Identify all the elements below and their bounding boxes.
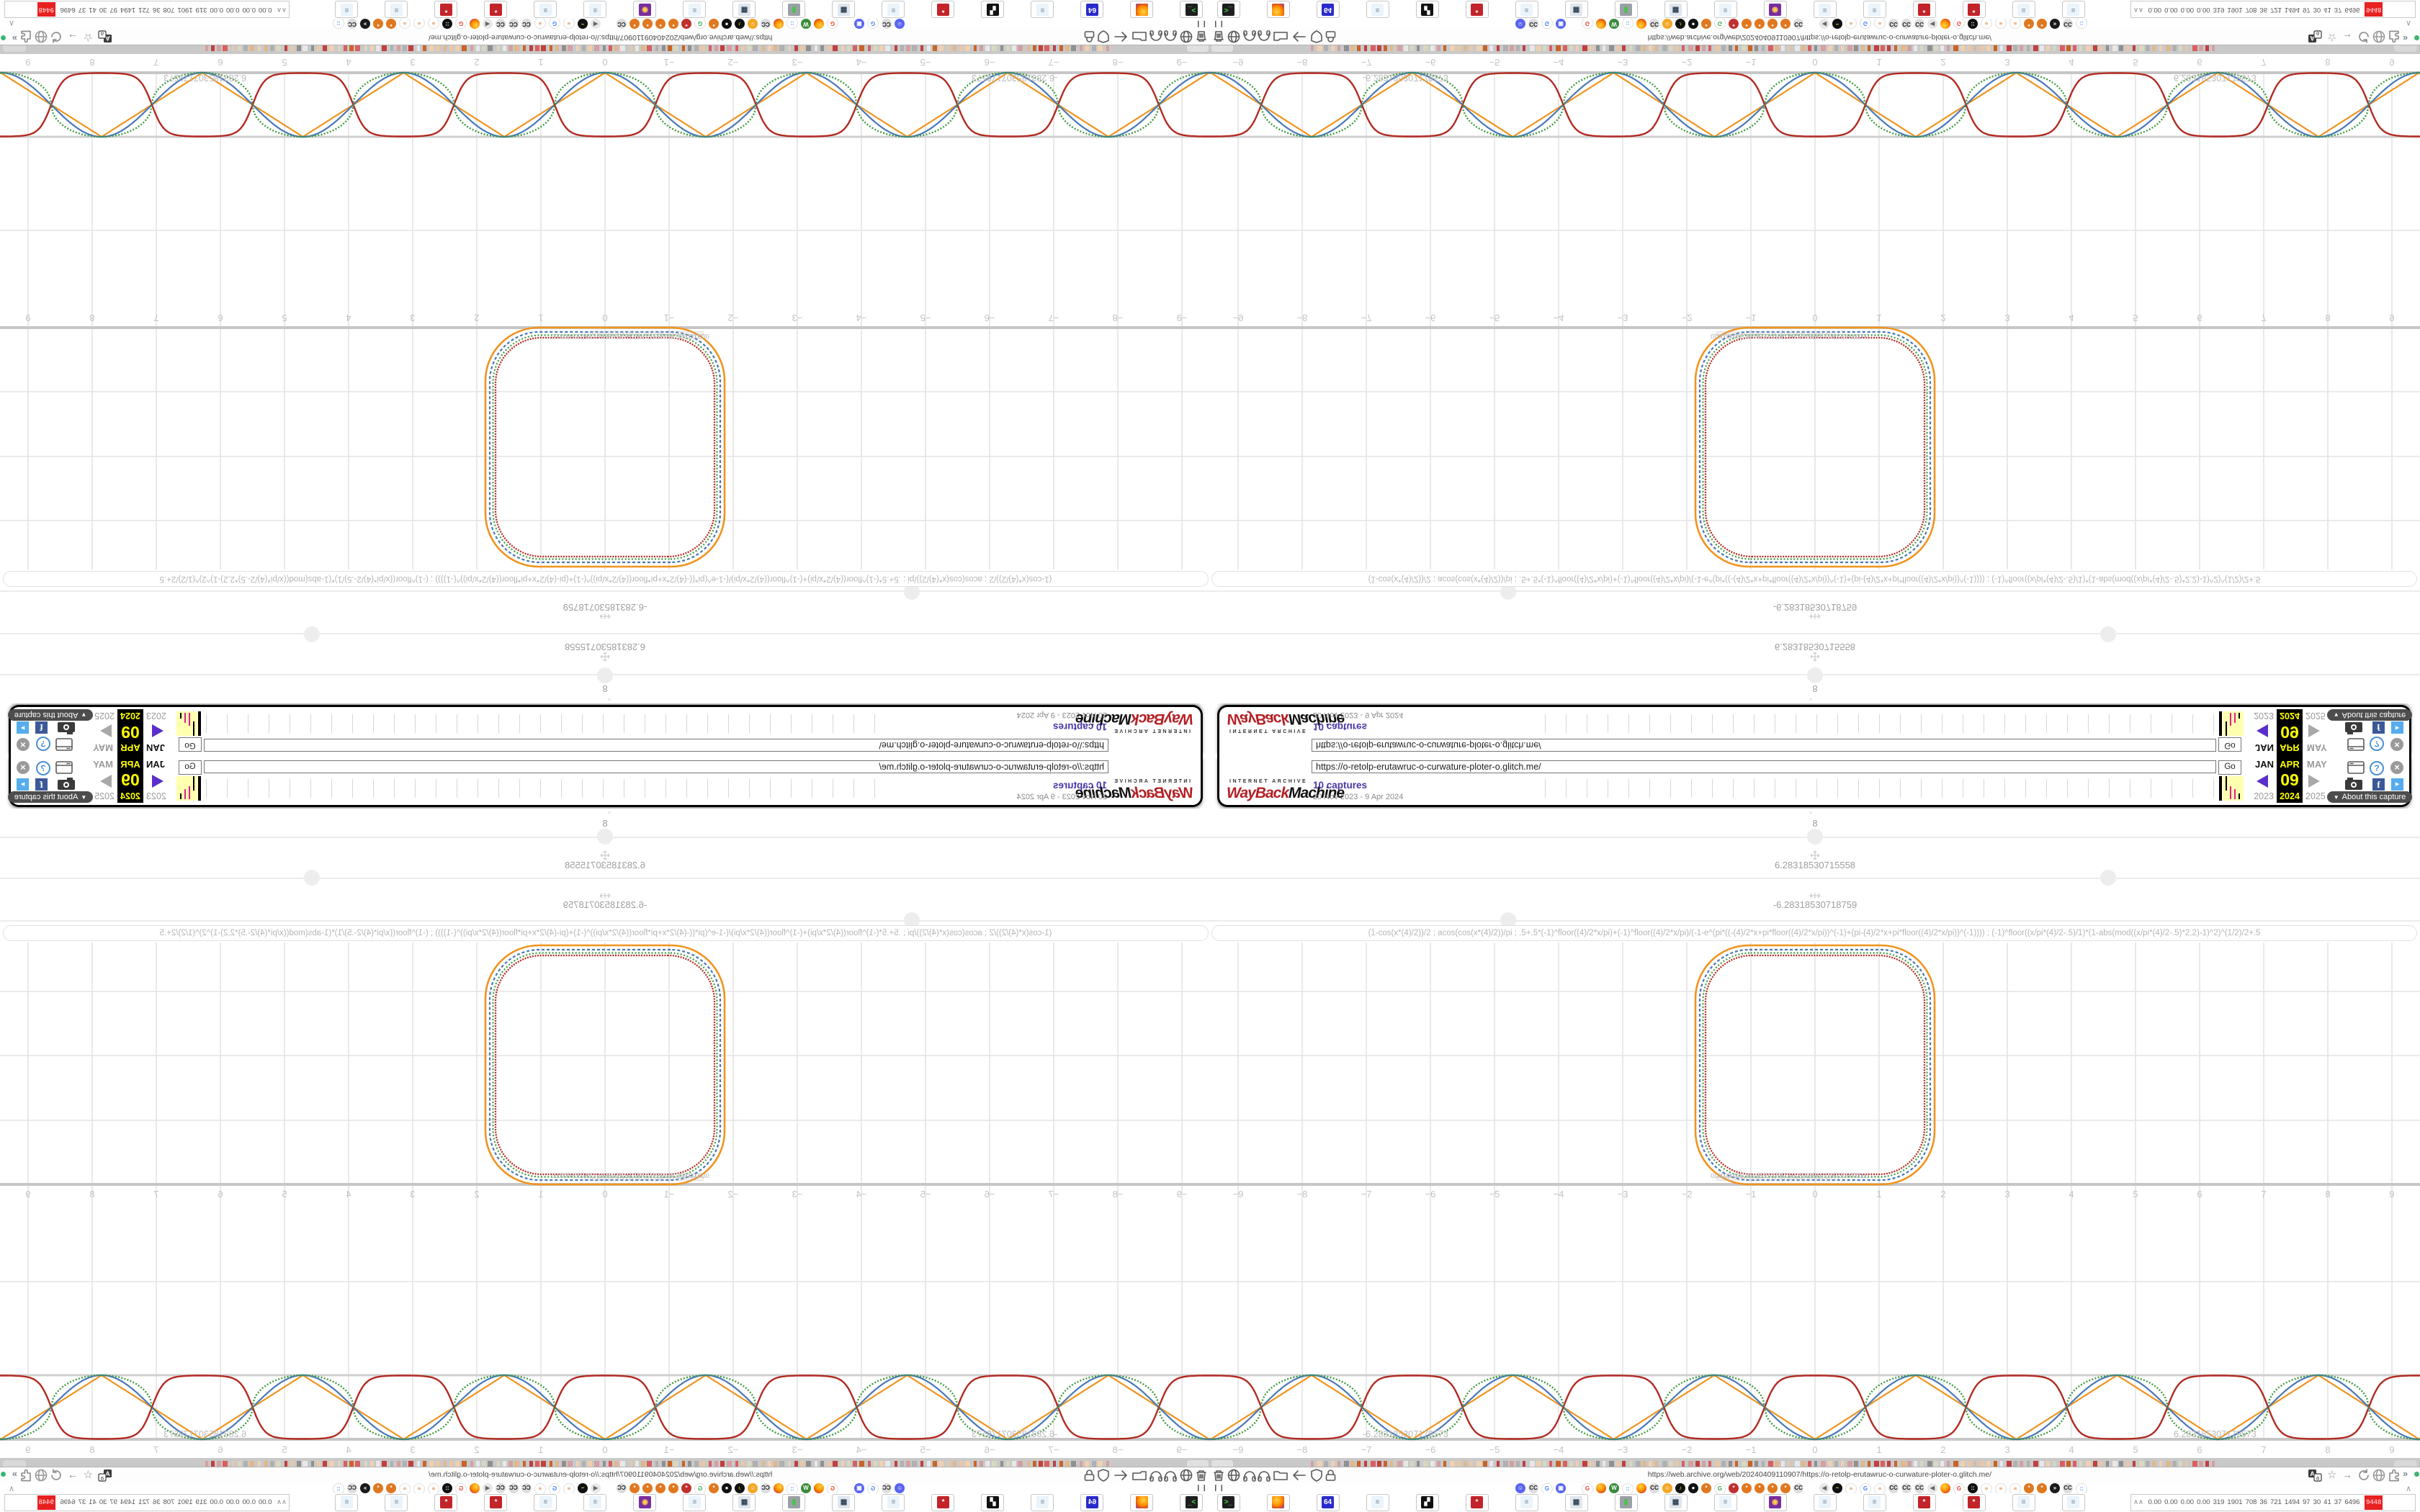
bookmark-favicon-9[interactable]: CC bbox=[761, 1483, 771, 1493]
extension-puzzle-icon[interactable] bbox=[2388, 1469, 2401, 1482]
about-this-capture-button[interactable]: ▼About this capture bbox=[2327, 709, 2412, 721]
tiny-tab-sliver[interactable] bbox=[514, 1461, 519, 1467]
tiny-tab-sliver[interactable] bbox=[1721, 1461, 1726, 1467]
tiny-tab-sliver[interactable] bbox=[655, 45, 658, 51]
tab-thumbnail-4[interactable]: ▞ bbox=[981, 1, 1004, 18]
tiny-tab-sliver[interactable] bbox=[1629, 45, 1632, 51]
tiny-tab-sliver[interactable] bbox=[933, 45, 937, 51]
tiny-tab-sliver[interactable] bbox=[1450, 45, 1455, 51]
tiny-tab-sliver[interactable] bbox=[668, 45, 672, 51]
tiny-tab-sliver[interactable] bbox=[912, 1461, 917, 1467]
tab-thumbnail-15[interactable]: * bbox=[434, 1494, 457, 1511]
tiny-tab-sliver[interactable] bbox=[985, 45, 990, 51]
collapse-chevron-icon[interactable]: ∧ bbox=[9, 19, 14, 28]
tab-thumbnail-16[interactable]: ≡ bbox=[385, 1, 408, 18]
tiny-tab-sliver[interactable] bbox=[1483, 45, 1487, 51]
month-prev[interactable]: JAN bbox=[146, 759, 175, 770]
tiny-tab-sliver[interactable] bbox=[1675, 1461, 1679, 1467]
tab-thumbnail-10[interactable]: ≡ bbox=[1714, 1494, 1737, 1511]
tab-thumbnail-12[interactable]: ≡ bbox=[1814, 1, 1837, 18]
headphones-icon-2[interactable] bbox=[1258, 30, 1270, 43]
bookmark-favicon-21[interactable]: ◀ bbox=[591, 19, 601, 29]
tab-thumbnail-11[interactable]: ◉ bbox=[633, 1, 656, 18]
tiny-tab-sliver[interactable] bbox=[1006, 45, 1010, 51]
bookmark-favicon-0[interactable]: ☺ bbox=[895, 1483, 905, 1493]
tiny-tab-sliver[interactable] bbox=[297, 1461, 301, 1467]
bookmark-favicon-14[interactable]: G bbox=[1714, 17, 1726, 29]
tiny-tab-sliver[interactable] bbox=[1768, 45, 1773, 51]
bookmark-favicon-11[interactable]: ♪ bbox=[1675, 19, 1685, 29]
bookmark-favicon-21[interactable]: ◀ bbox=[1819, 19, 1829, 29]
tiny-tab-sliver[interactable] bbox=[1569, 1461, 1573, 1467]
bookmark-favicon-26[interactable]: CC bbox=[1888, 1483, 1899, 1493]
tiny-tab-sliver[interactable] bbox=[1530, 1461, 1535, 1467]
bookmark-favicon-29[interactable]: ◀ bbox=[483, 1483, 493, 1493]
twitter-share-icon[interactable]: ▸ bbox=[17, 721, 29, 734]
bookmark-favicon-5[interactable] bbox=[1596, 1483, 1606, 1493]
tiny-tab-sliver[interactable] bbox=[694, 45, 699, 51]
tiny-tab-sliver[interactable] bbox=[879, 1461, 884, 1467]
bookmark-favicon-38[interactable]: » bbox=[2050, 19, 2060, 29]
tiny-tab-sliver[interactable] bbox=[662, 1461, 665, 1467]
bookmark-favicon-10[interactable]: ☺ bbox=[1662, 1483, 1672, 1493]
browser-window-icon[interactable] bbox=[55, 761, 73, 774]
year-prev[interactable]: 2023 bbox=[146, 711, 178, 721]
globe-icon[interactable] bbox=[1180, 30, 1193, 43]
tiny-tab-sliver[interactable] bbox=[594, 1461, 599, 1467]
bookmark-favicon-40[interactable]: :: bbox=[2076, 17, 2087, 29]
tiny-tab-sliver[interactable] bbox=[920, 1461, 923, 1467]
tiny-tab-sliver[interactable] bbox=[1960, 45, 1965, 51]
tiny-tab-sliver[interactable] bbox=[417, 45, 420, 51]
slider3-track[interactable] bbox=[0, 590, 1210, 592]
tiny-tab-sliver[interactable] bbox=[1456, 1461, 1461, 1467]
bookmark-favicon-39[interactable]: CC bbox=[347, 1483, 357, 1493]
tiny-tab-sliver[interactable] bbox=[349, 45, 354, 51]
bookmark-favicon-22[interactable]: ~ bbox=[578, 1483, 588, 1493]
capture-timeline[interactable] bbox=[172, 776, 875, 801]
collapse-chevron-icon[interactable]: ∧ bbox=[9, 1484, 14, 1493]
tab-thumbnail-17[interactable]: ≡ bbox=[2062, 1494, 2085, 1511]
tiny-tab-sliver[interactable] bbox=[933, 1461, 937, 1467]
tiny-tab-sliver[interactable] bbox=[1754, 1461, 1758, 1467]
tiny-tab-sliver[interactable] bbox=[1994, 45, 1997, 51]
tiny-tab-sliver[interactable] bbox=[700, 1461, 705, 1467]
slider1-handle[interactable] bbox=[1807, 829, 1823, 845]
tiny-tab-sliver[interactable] bbox=[974, 1461, 977, 1467]
slider3-track[interactable] bbox=[1210, 920, 2420, 922]
tiny-tab-sliver[interactable] bbox=[874, 45, 877, 51]
tiny-tab-sliver[interactable] bbox=[2046, 45, 2050, 51]
tiny-tab-sliver[interactable] bbox=[1443, 1461, 1446, 1467]
tab-thumbnail-12[interactable]: ≡ bbox=[583, 1, 606, 18]
tiny-tab-sliver[interactable] bbox=[1523, 45, 1525, 51]
tiny-tab-sliver[interactable] bbox=[329, 1461, 334, 1467]
tiny-tab-sliver[interactable] bbox=[1423, 1461, 1428, 1467]
tiny-tab-sliver[interactable] bbox=[317, 1461, 321, 1467]
tiny-tab-sliver[interactable] bbox=[2020, 1461, 2023, 1467]
tiny-tab-sliver[interactable] bbox=[2086, 45, 2091, 51]
tiny-tab-sliver[interactable] bbox=[774, 45, 778, 51]
tiny-tab-sliver[interactable] bbox=[1695, 45, 1700, 51]
folder-icon[interactable] bbox=[1132, 1470, 1147, 1481]
headphones-icon-2[interactable] bbox=[1149, 30, 1162, 43]
tiny-tab-sliver[interactable] bbox=[1344, 45, 1349, 51]
bookmark-favicon-20[interactable]: CC bbox=[617, 19, 627, 29]
tiny-tab-sliver[interactable] bbox=[833, 1461, 838, 1467]
tiny-tab-sliver[interactable] bbox=[853, 45, 857, 51]
tiny-tab-sliver[interactable] bbox=[1735, 45, 1738, 51]
tiny-tab-sliver[interactable] bbox=[938, 45, 944, 51]
tab-thumbnail-7[interactable]: ▦ bbox=[1565, 1, 1588, 18]
tab-thumbnail-7[interactable]: ▦ bbox=[832, 1, 855, 18]
tab-thumbnail-14[interactable]: * bbox=[484, 1494, 507, 1511]
bookmark-favicon-12[interactable]: ● bbox=[722, 1483, 732, 1493]
tiny-tab-sliver[interactable] bbox=[2027, 1461, 2030, 1467]
tiny-tab-sliver[interactable] bbox=[1364, 45, 1367, 51]
tiny-tab-sliver[interactable] bbox=[2106, 45, 2109, 51]
tiny-tab-sliver[interactable] bbox=[1934, 45, 1938, 51]
shield-icon[interactable] bbox=[1098, 30, 1109, 43]
tiny-tab-sliver[interactable] bbox=[1357, 1461, 1361, 1467]
tiny-tab-sliver[interactable] bbox=[284, 1461, 287, 1467]
tiny-tab-sliver[interactable] bbox=[1953, 45, 1958, 51]
tiny-tab-sliver[interactable] bbox=[747, 1461, 751, 1467]
tab-thumbnail-3[interactable]: ≡ bbox=[1031, 1, 1054, 18]
tiny-tab-sliver[interactable] bbox=[1331, 45, 1335, 51]
tiny-tab-sliver[interactable] bbox=[2119, 45, 2123, 51]
tiny-tab-sliver[interactable] bbox=[603, 1461, 606, 1467]
bookmark-favicon-6[interactable]: W bbox=[1609, 1483, 1619, 1493]
tiny-tab-sliver[interactable] bbox=[270, 45, 274, 51]
bookmark-favicon-20[interactable]: CC bbox=[617, 1483, 627, 1493]
tiny-tab-sliver[interactable] bbox=[2152, 1461, 2156, 1467]
tiny-tab-sliver[interactable] bbox=[317, 45, 321, 51]
tiny-tab-sliver[interactable] bbox=[1636, 1461, 1641, 1467]
tiny-tab-sliver[interactable] bbox=[2166, 1461, 2171, 1467]
tiny-tab-sliver[interactable] bbox=[1609, 1461, 1614, 1467]
tiny-tab-sliver[interactable] bbox=[1914, 1461, 1917, 1467]
tiny-tab-sliver[interactable] bbox=[323, 45, 327, 51]
month-next[interactable]: MAY bbox=[2307, 742, 2339, 753]
folder-icon[interactable] bbox=[1273, 31, 1288, 42]
slider1-handle[interactable] bbox=[597, 829, 613, 845]
tiny-tab-sliver[interactable] bbox=[1053, 1461, 1056, 1467]
go-button[interactable]: Go bbox=[179, 760, 202, 775]
close-toolbar-icon[interactable]: × bbox=[2390, 738, 2403, 751]
tiny-tab-sliver[interactable] bbox=[2020, 45, 2023, 51]
capture-burst-bar[interactable] bbox=[198, 711, 201, 736]
tiny-tab-sliver[interactable] bbox=[276, 1461, 281, 1467]
tab-thumbnail-16[interactable]: ≡ bbox=[2012, 1494, 2035, 1511]
tab-thumbnail-2[interactable]: 64 bbox=[1317, 1494, 1340, 1511]
tiny-tab-sliver[interactable] bbox=[1682, 45, 1685, 51]
tiny-tab-sliver[interactable] bbox=[2027, 45, 2030, 51]
bookmark-favicon-38[interactable]: » bbox=[360, 19, 370, 29]
tiny-tab-sliver[interactable] bbox=[555, 45, 559, 51]
next-capture-arrow[interactable] bbox=[100, 775, 112, 788]
bookmark-favicon-39[interactable]: CC bbox=[2063, 1483, 2073, 1493]
bookmark-favicon-6[interactable]: W bbox=[1609, 19, 1619, 29]
back-arrow-icon[interactable] bbox=[1113, 31, 1128, 42]
tiny-tab-sliver[interactable] bbox=[2106, 1461, 2109, 1467]
bookmark-favicon-15[interactable]: * bbox=[1729, 19, 1739, 29]
back-arrow-icon[interactable] bbox=[1113, 1470, 1128, 1481]
tab-thumbnail-4[interactable]: ▞ bbox=[1416, 1, 1439, 18]
tiny-tab-sliver[interactable] bbox=[620, 1461, 625, 1467]
tiny-tab-sliver[interactable] bbox=[1092, 1461, 1096, 1467]
tiny-tab-sliver[interactable] bbox=[1748, 45, 1752, 51]
bookmark-favicon-12[interactable]: ● bbox=[1688, 19, 1698, 29]
tiny-tab-sliver[interactable] bbox=[1027, 45, 1030, 51]
facebook-share-icon[interactable]: f bbox=[2372, 721, 2385, 734]
tiny-tab-sliver[interactable] bbox=[1516, 45, 1520, 51]
tiny-tab-sliver[interactable] bbox=[1881, 45, 1885, 51]
bookmark-favicon-39[interactable]: CC bbox=[2063, 19, 2073, 29]
tiny-tab-sliver[interactable] bbox=[641, 1461, 645, 1467]
tiny-tab-sliver[interactable] bbox=[223, 45, 228, 51]
tiny-tab-sliver[interactable] bbox=[1603, 45, 1605, 51]
tab-thumbnail-8[interactable]: ▮ bbox=[1615, 1, 1638, 18]
tiny-tab-sliver[interactable] bbox=[2033, 1461, 2038, 1467]
tiny-tab-sliver[interactable] bbox=[535, 45, 539, 51]
tiny-tab-sliver[interactable] bbox=[1404, 1461, 1408, 1467]
bookmark-favicon-18[interactable]: * bbox=[642, 1483, 653, 1493]
tiny-tab-sliver[interactable] bbox=[2179, 45, 2182, 51]
tiny-tab-sliver[interactable] bbox=[2079, 45, 2082, 51]
twitter-share-icon[interactable]: ▸ bbox=[2391, 721, 2403, 734]
active-tab[interactable] bbox=[1187, 45, 1209, 52]
tiny-tab-sliver[interactable] bbox=[1065, 1461, 1070, 1467]
tiny-tab-sliver[interactable] bbox=[1781, 45, 1785, 51]
tab-thumbnail-11[interactable]: ◉ bbox=[633, 1494, 656, 1511]
tiny-tab-sliver[interactable] bbox=[1940, 45, 1944, 51]
tiny-tab-sliver[interactable] bbox=[635, 45, 639, 51]
bookmark-favicon-0[interactable]: ☺ bbox=[1515, 1483, 1525, 1493]
bookmark-favicon-30[interactable] bbox=[470, 1483, 480, 1493]
tiny-tab-sliver[interactable] bbox=[1642, 45, 1646, 51]
tiny-tab-sliver[interactable] bbox=[508, 1461, 513, 1467]
captures-link[interactable]: 10 captures bbox=[1053, 721, 1107, 732]
tiny-tab-sliver[interactable] bbox=[297, 45, 301, 51]
captures-link[interactable]: 10 captures bbox=[1053, 780, 1107, 791]
tiny-tab-sliver[interactable] bbox=[1350, 45, 1355, 51]
bookmark-favicon-33[interactable]: ≡ bbox=[1981, 17, 1992, 29]
tiny-tab-sliver[interactable] bbox=[2040, 1461, 2044, 1467]
tiny-tab-sliver[interactable] bbox=[562, 1461, 566, 1467]
bookmark-favicon-30[interactable] bbox=[1940, 1483, 1950, 1493]
tiny-tab-sliver[interactable] bbox=[1901, 45, 1906, 51]
tiny-tab-sliver[interactable] bbox=[503, 45, 506, 51]
tiny-tab-sliver[interactable] bbox=[470, 45, 473, 51]
tiny-tab-sliver[interactable] bbox=[900, 1461, 904, 1467]
tiny-tab-sliver[interactable] bbox=[2007, 1461, 2012, 1467]
tiny-tab-sliver[interactable] bbox=[927, 45, 931, 51]
tiny-tab-sliver[interactable] bbox=[1364, 1461, 1367, 1467]
bookmark-favicon-23[interactable]: ≡ bbox=[1845, 17, 1857, 29]
next-capture-arrow[interactable] bbox=[2308, 724, 2320, 737]
lock-icon[interactable] bbox=[1084, 1469, 1095, 1482]
browser-window-icon[interactable] bbox=[2347, 738, 2365, 751]
tiny-tab-sliver[interactable] bbox=[382, 1461, 387, 1467]
tiny-tab-sliver[interactable] bbox=[2000, 45, 2003, 51]
folder-icon[interactable] bbox=[1273, 1470, 1288, 1481]
screenshot-capture-icon[interactable] bbox=[2344, 720, 2365, 734]
tiny-tab-sliver[interactable] bbox=[535, 1461, 539, 1467]
address-url[interactable]: https://web.archive.org/web/202404091109… bbox=[429, 33, 821, 42]
tiny-tab-sliver[interactable] bbox=[1636, 45, 1641, 51]
tiny-tab-sliver[interactable] bbox=[1861, 45, 1865, 51]
tab-thumbnail-16[interactable]: ≡ bbox=[385, 1494, 408, 1511]
tiny-tab-sliver[interactable] bbox=[1729, 45, 1732, 51]
tiny-tab-sliver[interactable] bbox=[2126, 45, 2130, 51]
tiny-tab-sliver[interactable] bbox=[2060, 1461, 2065, 1467]
tiny-tab-sliver[interactable] bbox=[868, 1461, 871, 1467]
tiny-tab-sliver[interactable] bbox=[727, 1461, 732, 1467]
tiny-tab-sliver[interactable] bbox=[1390, 1461, 1393, 1467]
month-prev[interactable]: JAN bbox=[2245, 742, 2274, 753]
tiny-tab-sliver[interactable] bbox=[1543, 1461, 1546, 1467]
bookmark-favicon-26[interactable]: CC bbox=[521, 1483, 532, 1493]
extension-puzzle-icon[interactable] bbox=[19, 1469, 32, 1482]
tiny-tab-sliver[interactable] bbox=[1708, 45, 1711, 51]
tiny-tab-sliver[interactable] bbox=[853, 1461, 857, 1467]
browser-window-icon[interactable] bbox=[2347, 761, 2365, 774]
bookmark-favicon-23[interactable]: ≡ bbox=[563, 17, 575, 29]
tab-thumbnail-4[interactable]: ▞ bbox=[1416, 1494, 1439, 1511]
bookmark-favicon-30[interactable] bbox=[470, 19, 480, 29]
tiny-tab-sliver[interactable] bbox=[1801, 45, 1806, 51]
tiny-tab-sliver[interactable] bbox=[1967, 45, 1971, 51]
tiny-tab-sliver[interactable] bbox=[1311, 1461, 1314, 1467]
bookmark-favicon-13[interactable]: * bbox=[709, 1483, 719, 1493]
bookmark-favicon-27[interactable]: CC bbox=[1901, 1483, 1912, 1493]
tab-thumbnail-10[interactable]: ≡ bbox=[1714, 1, 1737, 18]
tiny-tab-sliver[interactable] bbox=[523, 1461, 526, 1467]
bookmark-favicon-1[interactable]: CC bbox=[1528, 19, 1538, 29]
tiny-tab-sliver[interactable] bbox=[1080, 45, 1083, 51]
tiny-tab-sliver[interactable] bbox=[2013, 45, 2017, 51]
system-monitor-panel[interactable]: ∧∧ 0.000.000.000.00319190170836721149497… bbox=[4, 1494, 290, 1511]
tiny-tab-sliver[interactable] bbox=[1947, 45, 1950, 51]
tiny-tab-sliver[interactable] bbox=[1331, 1461, 1335, 1467]
bookmark-favicon-16[interactable]: * bbox=[668, 1483, 678, 1493]
tiny-tab-sliver[interactable] bbox=[2212, 1461, 2215, 1467]
tiny-tab-sliver[interactable] bbox=[1868, 1461, 1870, 1467]
about-this-capture-button[interactable]: ▼About this capture bbox=[8, 709, 93, 721]
tiny-tab-sliver[interactable] bbox=[1986, 1461, 1991, 1467]
tiny-tab-sliver[interactable] bbox=[827, 1461, 831, 1467]
bookmark-favicon-10[interactable]: ☺ bbox=[748, 1483, 758, 1493]
extension-puzzle-icon[interactable] bbox=[19, 30, 32, 43]
tiny-tab-sliver[interactable] bbox=[1039, 1461, 1043, 1467]
tiny-tab-sliver[interactable] bbox=[847, 45, 851, 51]
trash-icon[interactable] bbox=[1196, 1469, 1207, 1482]
tiny-tab-sliver[interactable] bbox=[488, 45, 493, 51]
tab-thumbnail-6[interactable]: ≡ bbox=[882, 1, 905, 18]
bookmark-favicon-36[interactable]: * bbox=[2024, 19, 2034, 29]
bookmark-favicon-16[interactable]: * bbox=[1742, 19, 1752, 29]
tiny-tab-sliver[interactable] bbox=[1603, 1461, 1605, 1467]
tab-thumbnail-12[interactable]: ≡ bbox=[583, 1494, 606, 1511]
bookmark-favicon-24[interactable]: G bbox=[549, 17, 560, 29]
tiny-tab-sliver[interactable] bbox=[1317, 1461, 1322, 1467]
tiny-tab-sliver[interactable] bbox=[1516, 1461, 1520, 1467]
tab-thumbnail-9[interactable]: ▦ bbox=[732, 1, 756, 18]
system-monitor-panel[interactable]: ∧∧ 0.000.000.000.00319190170836721149497… bbox=[4, 1, 290, 18]
tiny-tab-sliver[interactable] bbox=[609, 1461, 612, 1467]
bookmark-favicon-25[interactable]: ≡ bbox=[1874, 17, 1886, 29]
tiny-tab-sliver[interactable] bbox=[390, 1461, 393, 1467]
overflow-chevrons-icon[interactable]: » bbox=[12, 33, 17, 44]
tab-thumbnail-4[interactable]: ▞ bbox=[981, 1494, 1004, 1511]
bookmark-favicon-20[interactable]: CC bbox=[1793, 1483, 1803, 1493]
tiny-tab-sliver[interactable] bbox=[1582, 45, 1587, 51]
tiny-tab-sliver[interactable] bbox=[514, 45, 519, 51]
tiny-tab-sliver[interactable] bbox=[588, 45, 592, 51]
about-this-capture-button[interactable]: ▼About this capture bbox=[2327, 791, 2412, 803]
tab-thumbnail-17[interactable]: ≡ bbox=[2062, 1, 2085, 18]
tiny-tab-sliver[interactable] bbox=[435, 45, 440, 51]
tiny-tab-sliver[interactable] bbox=[1715, 45, 1720, 51]
tiny-tab-sliver[interactable] bbox=[1662, 45, 1667, 51]
tiny-tab-sliver[interactable] bbox=[582, 1461, 586, 1467]
tiny-tab-sliver[interactable] bbox=[408, 1461, 413, 1467]
tiny-tab-sliver[interactable] bbox=[779, 45, 784, 51]
tiny-tab-sliver[interactable] bbox=[1337, 45, 1340, 51]
tiny-tab-sliver[interactable] bbox=[2126, 1461, 2130, 1467]
tiny-tab-sliver[interactable] bbox=[1828, 1461, 1832, 1467]
tiny-tab-sliver[interactable] bbox=[455, 45, 460, 51]
globe-site-icon[interactable] bbox=[2372, 1469, 2385, 1482]
tiny-tab-sliver[interactable] bbox=[1503, 1461, 1508, 1467]
tiny-tab-sliver[interactable] bbox=[700, 45, 705, 51]
forward-arrow-icon[interactable]: → bbox=[68, 32, 78, 43]
tiny-tab-sliver[interactable] bbox=[1920, 1461, 1923, 1467]
tiny-tab-sliver[interactable] bbox=[1397, 1461, 1402, 1467]
tiny-tab-sliver[interactable] bbox=[1688, 1461, 1693, 1467]
tiny-tab-sliver[interactable] bbox=[249, 45, 254, 51]
tiny-tab-sliver[interactable] bbox=[2205, 1461, 2209, 1467]
tiny-tab-sliver[interactable] bbox=[249, 1461, 254, 1467]
extension-puzzle-icon[interactable] bbox=[2388, 30, 2401, 43]
tiny-tab-sliver[interactable] bbox=[1039, 45, 1043, 51]
tiny-tab-sliver[interactable] bbox=[205, 45, 208, 51]
tiny-tab-sliver[interactable] bbox=[1556, 45, 1561, 51]
bookmark-favicon-9[interactable]: CC bbox=[1649, 1483, 1659, 1493]
lock-icon[interactable] bbox=[1084, 30, 1095, 43]
bookmark-favicon-32[interactable]: :: bbox=[442, 1483, 452, 1493]
capture-timeline[interactable] bbox=[1545, 711, 2248, 736]
tiny-tab-sliver[interactable] bbox=[806, 45, 811, 51]
tiny-tab-sliver[interactable] bbox=[243, 45, 248, 51]
tab-thumbnail-6[interactable]: ≡ bbox=[1515, 1494, 1538, 1511]
go-button[interactable]: Go bbox=[2218, 737, 2241, 752]
captures-link[interactable]: 10 captures bbox=[1313, 780, 1367, 791]
tiny-tab-sliver[interactable] bbox=[641, 45, 645, 51]
tiny-tab-sliver[interactable] bbox=[2000, 1461, 2003, 1467]
globe-icon[interactable] bbox=[1227, 30, 1240, 43]
tab-thumbnail-7[interactable]: ▦ bbox=[832, 1494, 855, 1511]
bookmark-favicon-10[interactable]: ☺ bbox=[1662, 19, 1672, 29]
tab-thumbnail-2[interactable]: 64 bbox=[1317, 1, 1340, 18]
tiny-tab-sliver[interactable] bbox=[329, 45, 334, 51]
tiny-tab-sliver[interactable] bbox=[1742, 45, 1747, 51]
bookmark-favicon-22[interactable]: ~ bbox=[1832, 19, 1842, 29]
tiny-tab-sliver[interactable] bbox=[1814, 45, 1817, 51]
tiny-tab-sliver[interactable] bbox=[815, 45, 817, 51]
tiny-tab-sliver[interactable] bbox=[1874, 1461, 1879, 1467]
